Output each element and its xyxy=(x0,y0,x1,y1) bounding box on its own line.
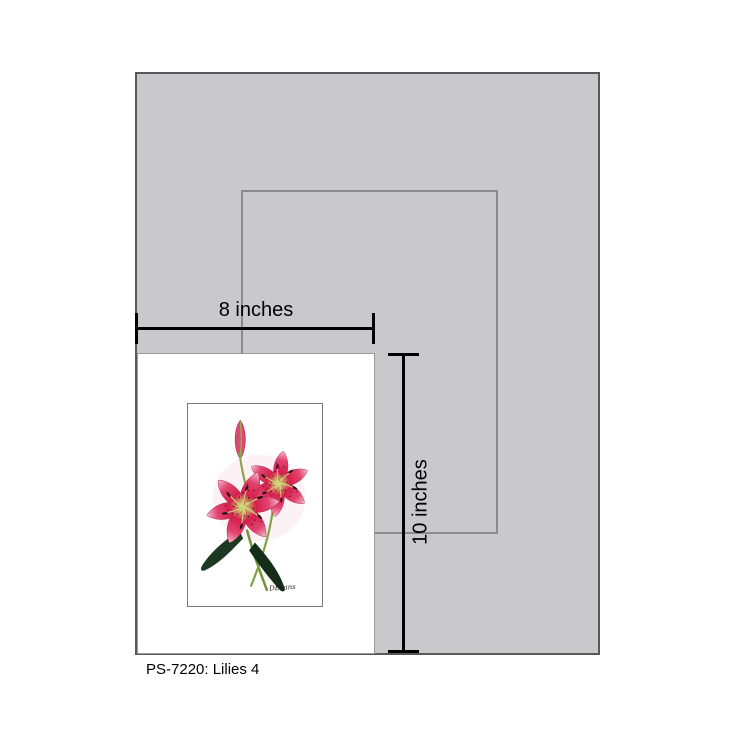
artist-signature: DEvans xyxy=(268,583,296,593)
artwork-frame: DEvans xyxy=(187,403,323,607)
lily-leaves xyxy=(201,531,285,592)
lilies-illustration: DEvans xyxy=(188,404,322,606)
height-measure-line xyxy=(402,355,405,653)
product-caption: PS-7220: Lilies 4 xyxy=(146,661,259,678)
print-card: DEvans xyxy=(137,353,375,654)
width-measure-line xyxy=(137,327,375,330)
height-measurement-label: 10 inches xyxy=(410,459,433,545)
height-measure-tick-bottom xyxy=(388,650,419,653)
lily-bud xyxy=(235,420,245,460)
height-measure-tick-top xyxy=(388,353,419,356)
print-size-mockup: DEvans 8 inches 10 inches PS-7220: Lilie… xyxy=(0,0,738,738)
width-measurement-label: 8 inches xyxy=(137,298,375,322)
